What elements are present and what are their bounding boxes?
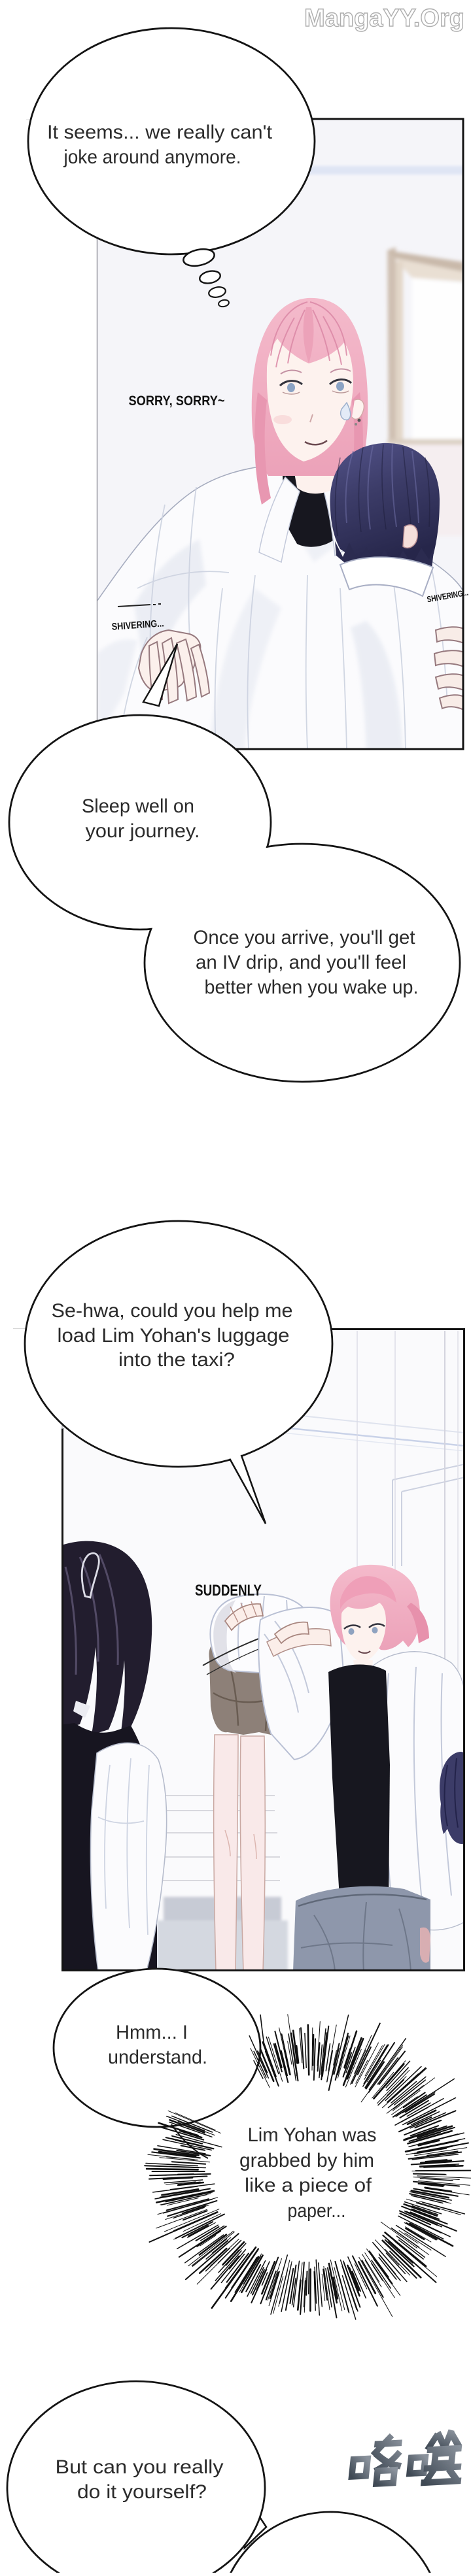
svg-text:understand.: understand.	[108, 2047, 207, 2068]
svg-text:your journey.: your journey.	[86, 820, 200, 842]
svg-text:like a piece of: like a piece of	[245, 2175, 372, 2196]
svg-text:Hmm... I: Hmm... I	[116, 2022, 188, 2043]
svg-text:do it yourself?: do it yourself?	[77, 2481, 207, 2503]
svg-text:load Lim Yohan's luggage: load Lim Yohan's luggage	[58, 1325, 290, 1347]
svg-text:MangaYY.Org: MangaYY.Org	[304, 5, 464, 32]
svg-text:paper...: paper...	[288, 2200, 346, 2222]
svg-text:SORRY, SORRY~: SORRY, SORRY~	[129, 393, 225, 409]
svg-text:Se-hwa, could you help me: Se-hwa, could you help me	[52, 1300, 293, 1322]
svg-text:Once you arrive, you'll get: Once you arrive, you'll get	[194, 927, 416, 948]
svg-text:an IV drip, and you'll feel: an IV drip, and you'll feel	[196, 952, 406, 973]
svg-text:Sleep well on: Sleep well on	[82, 795, 194, 817]
svg-text:It seems... we really can't: It seems... we really can't	[47, 122, 273, 143]
svg-text:better when you wake up.: better when you wake up.	[205, 977, 419, 998]
svg-text:Lim Yohan was: Lim Yohan was	[248, 2124, 377, 2146]
svg-text:grabbed by him: grabbed by him	[239, 2150, 374, 2171]
svg-text:into the taxi?: into the taxi?	[118, 1349, 235, 1371]
svg-text:SUDDENLY: SUDDENLY	[195, 1582, 262, 1599]
svg-text:But can you really: But can you really	[56, 2456, 224, 2478]
svg-text:joke around anymore.: joke around anymore.	[63, 146, 241, 168]
